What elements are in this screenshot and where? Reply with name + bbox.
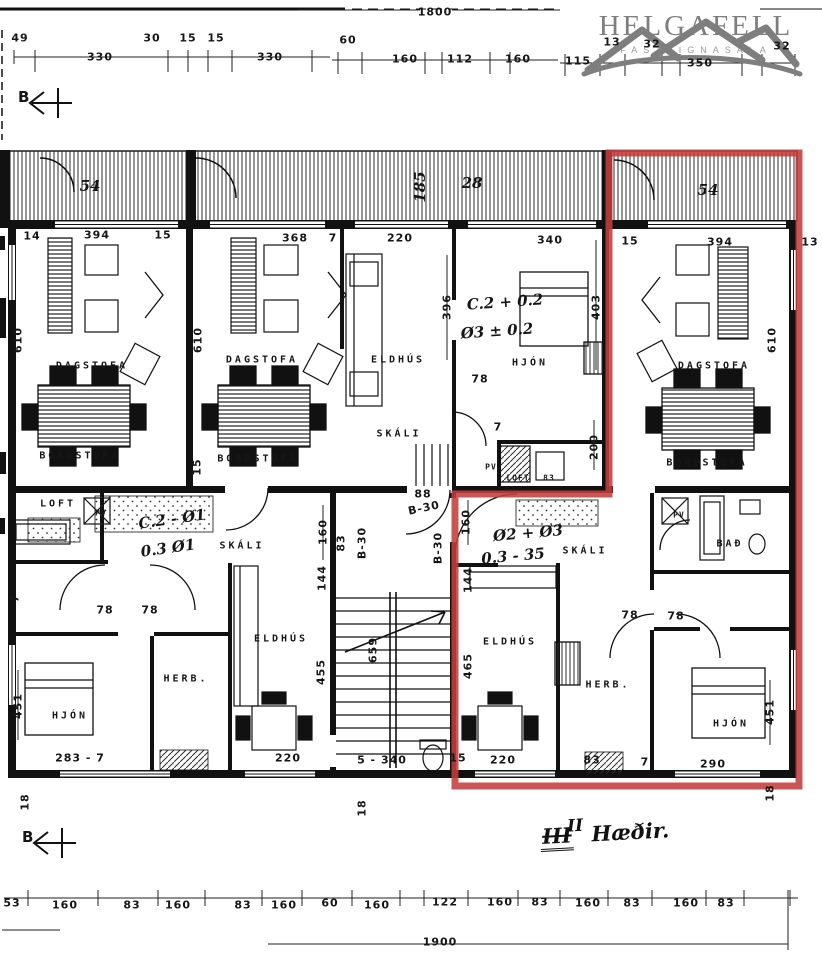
floor-note-text: Hæðir. [591, 817, 670, 846]
floorplan-sheet: HELGAFELL FASTEIGNASALA B B IIIIIHæðir. … [0, 0, 822, 976]
section-arrow-icon [22, 828, 78, 858]
section-marker-bottom: B [22, 828, 33, 846]
mountain-logo-icon [580, 12, 804, 80]
balcony-strip [0, 150, 797, 228]
dining-tables [22, 366, 770, 469]
section-arrow-icon [18, 88, 74, 118]
door-gaps [118, 300, 730, 767]
living-room-furniture [48, 238, 748, 385]
agency-logo: HELGAFELL FASTEIGNASALA [580, 12, 812, 55]
floor-note-replacement: II [567, 816, 584, 837]
section-marker-top: B [18, 88, 29, 106]
